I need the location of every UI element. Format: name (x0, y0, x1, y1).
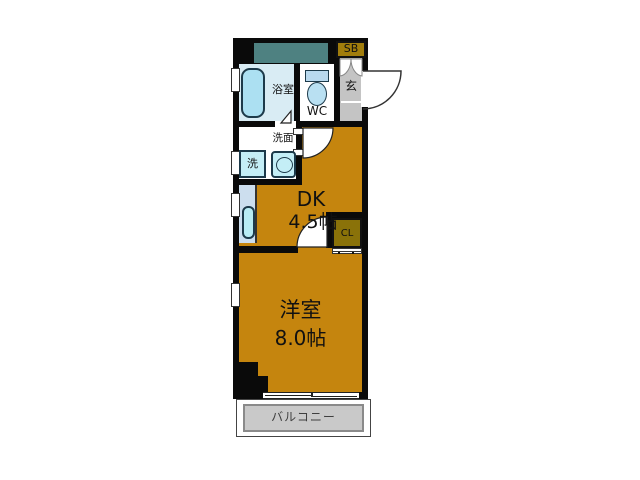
wall-dk-western (233, 246, 298, 253)
bathtub (241, 68, 265, 118)
closet-door-track (332, 248, 362, 254)
entrance-step-line (341, 101, 361, 103)
window (231, 193, 240, 217)
washroom-label: 洗面 (263, 133, 303, 145)
dk-size-label: 4.5帖 (275, 212, 351, 233)
balcony: バルコニー (236, 399, 371, 437)
bathroom-label: 浴室 (263, 84, 303, 96)
toilet-bowl (307, 82, 327, 106)
bathroom-door-opening (275, 121, 296, 127)
washing-machine: 洗 (239, 150, 266, 178)
entrance-door-opening (361, 71, 369, 107)
balcony-deck: バルコニー (243, 404, 364, 432)
shoe-box-label: SB (344, 43, 359, 55)
western-room-label: 洋室 (239, 299, 362, 322)
floor-plan: SB CL 洗 バルコニー (0, 0, 640, 480)
washbasin (271, 151, 296, 178)
western-room-size-label: 8.0帖 (239, 327, 362, 349)
dk-label: DK (280, 188, 342, 210)
entrance-label: 玄 (340, 80, 362, 93)
shoe-box: SB (336, 41, 366, 58)
structural-column (235, 362, 258, 399)
washing-machine-label: 洗 (247, 158, 258, 170)
pipe-space (254, 43, 328, 63)
wall-washroom-bottom (233, 179, 302, 185)
balcony-sliding-door (263, 392, 359, 399)
balcony-label: バルコニー (271, 411, 336, 424)
wc-label: WC (300, 105, 334, 118)
window (231, 68, 240, 92)
kitchen-sink (242, 206, 255, 239)
toilet-tank (305, 70, 329, 82)
